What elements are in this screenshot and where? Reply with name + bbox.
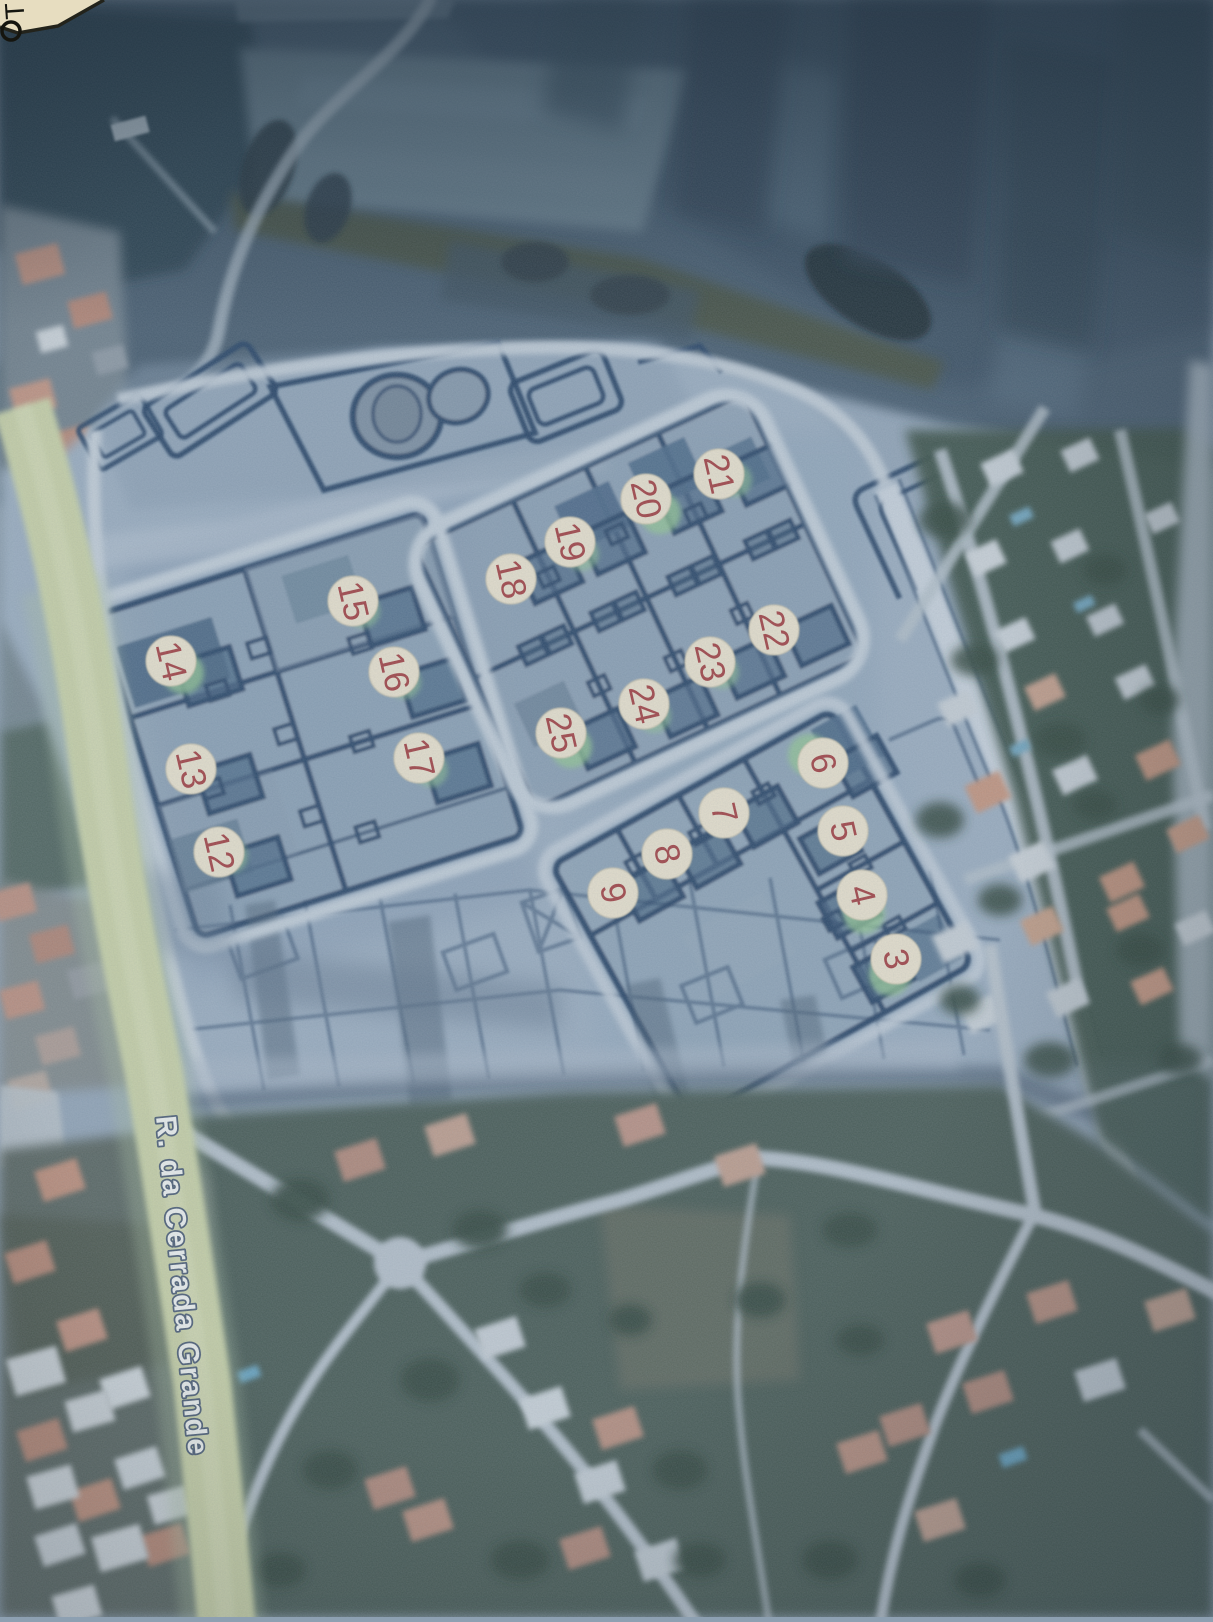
svg-text:T: T <box>0 2 31 21</box>
